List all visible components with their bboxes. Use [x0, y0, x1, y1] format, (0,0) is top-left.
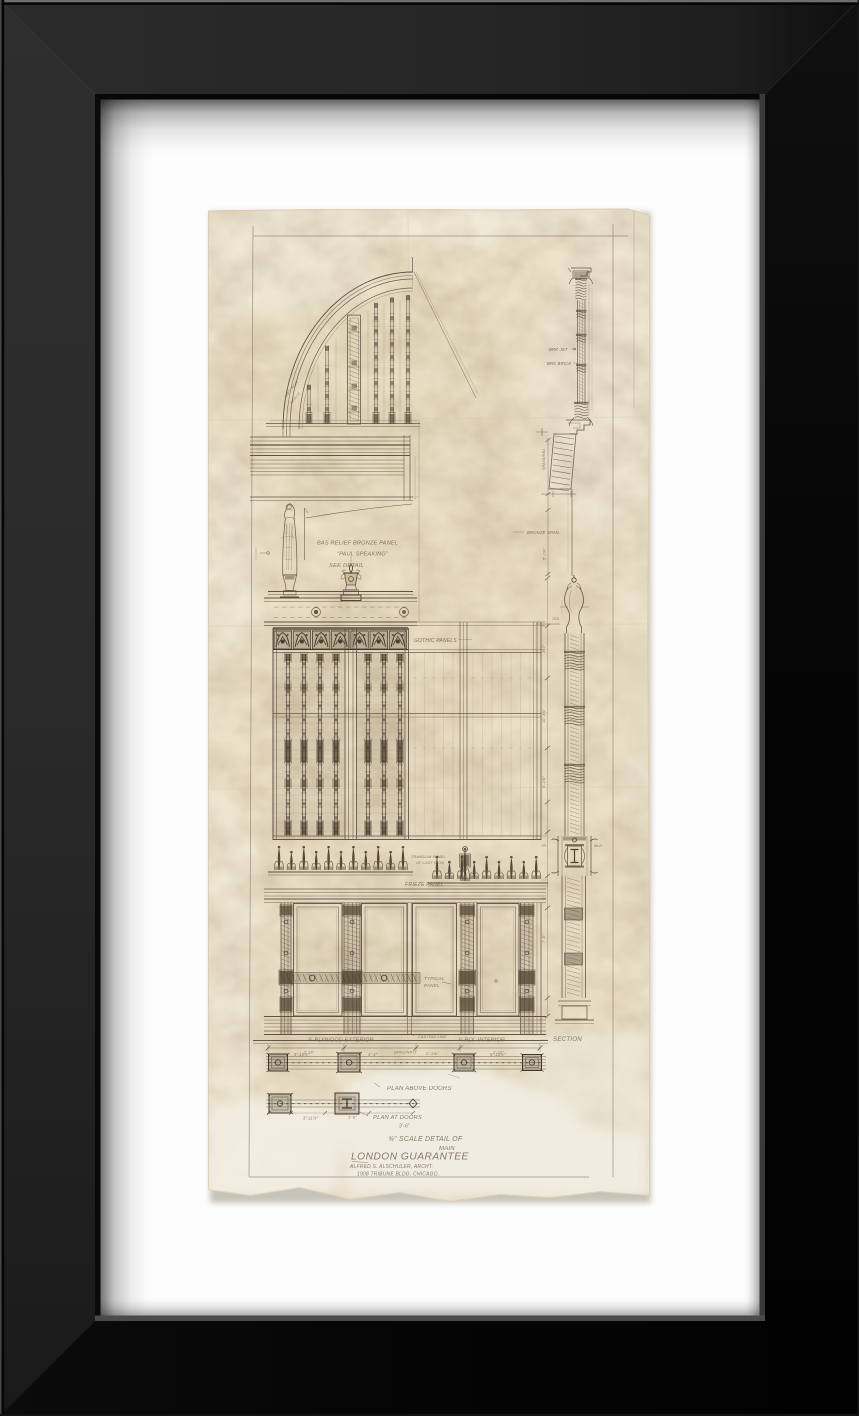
svg-text:MLD: MLD — [594, 844, 602, 848]
svg-text:2'-1⅞": 2'-1⅞" — [425, 1051, 439, 1056]
svg-text:¾ PLY. INTERIOR: ¾ PLY. INTERIOR — [458, 1038, 505, 1044]
svg-text:7'-6": 7'-6" — [542, 934, 546, 943]
svg-text:5'-1⅞": 5'-1⅞" — [543, 548, 547, 560]
svg-text:ALFRED S. ALSCHULER, ARCHT.: ALFRED S. ALSCHULER, ARCHT. — [349, 1164, 433, 1170]
svg-text:2'-10": 2'-10" — [492, 1051, 504, 1055]
svg-text:PLAN ABOVE DOORS: PLAN ABOVE DOORS — [387, 1086, 452, 1092]
svg-text:2'-10": 2'-10" — [303, 1051, 315, 1055]
svg-text:FRIEZE PANEL: FRIEZE PANEL — [405, 882, 444, 888]
svg-text:6'-1⅞": 6'-1⅞" — [542, 776, 546, 788]
svg-text:10'-3⅞": 10'-3⅞" — [542, 708, 546, 723]
svg-text:CASTING LINE: CASTING LINE — [418, 1035, 447, 1039]
svg-text:3'-6": 3'-6" — [399, 1124, 410, 1130]
svg-text:1908 TRIBUNE BLDG. CHICAGO.: 1908 TRIBUNE BLDG. CHICAGO. — [357, 1172, 439, 1178]
svg-text:3'-11⅞": 3'-11⅞" — [303, 1116, 319, 1121]
svg-text:¾" SCALE DETAIL OF: ¾" SCALE DETAIL OF — [388, 1136, 463, 1143]
svg-text:1'-8": 1'-8" — [348, 1115, 357, 1120]
svg-text:SECTION: SECTION — [553, 1036, 582, 1043]
svg-text:OF CAST IRON: OF CAST IRON — [416, 861, 444, 865]
svg-text:BRK JST: BRK JST — [549, 347, 568, 352]
svg-text:PANEL: PANEL — [424, 983, 440, 988]
svg-text:BRONZE SPAN.: BRONZE SPAN. — [527, 530, 560, 535]
svg-text:3'-7": 3'-7" — [542, 644, 546, 653]
svg-text:(MASONRY): (MASONRY) — [394, 1051, 416, 1055]
svg-text:BAS RELIEF BRONZE PANEL: BAS RELIEF BRONZE PANEL — [317, 541, 398, 547]
svg-text:10⅞: 10⅞ — [552, 617, 559, 621]
svg-text:SPANDREL: SPANDREL — [542, 448, 546, 470]
svg-text:TYPICAL: TYPICAL — [424, 976, 445, 981]
svg-text:TR.: TR. — [541, 844, 547, 848]
svg-text:TRANSOM PANEL: TRANSOM PANEL — [411, 855, 446, 859]
svg-text:“PAUL SPEAKING”: “PAUL SPEAKING” — [337, 552, 389, 558]
svg-text:SEE DETAIL: SEE DETAIL — [329, 563, 364, 569]
svg-text:BRK BRICK: BRK BRICK — [547, 361, 571, 366]
svg-text:GOTHIC PANELS: GOTHIC PANELS — [414, 638, 457, 644]
svg-text:¾ PLYWOOD EXTERIOR: ¾ PLYWOOD EXTERIOR — [308, 1038, 374, 1044]
svg-text:LONDON GUARANTEE: LONDON GUARANTEE — [351, 1152, 469, 1163]
svg-text:PLAN AT DOORS: PLAN AT DOORS — [373, 1115, 422, 1121]
